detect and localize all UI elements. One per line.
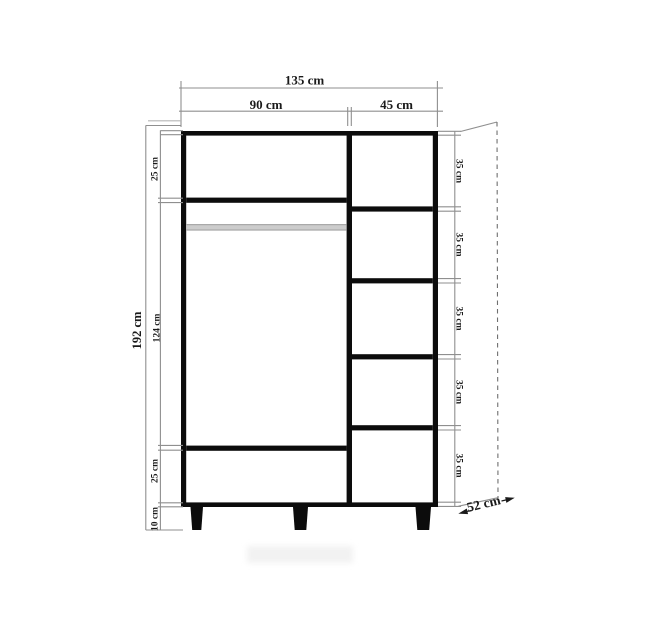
- svg-text:192 cm: 192 cm: [130, 311, 144, 349]
- svg-text:35 cm: 35 cm: [454, 306, 464, 330]
- svg-text:135 cm: 135 cm: [285, 73, 325, 88]
- svg-text:35 cm: 35 cm: [454, 453, 464, 477]
- svg-text:124 cm: 124 cm: [152, 314, 162, 343]
- svg-text:45 cm: 45 cm: [380, 97, 413, 112]
- svg-text:25 cm: 25 cm: [151, 157, 161, 181]
- svg-text:35 cm: 35 cm: [454, 232, 464, 256]
- svg-text:25 cm: 25 cm: [151, 459, 161, 483]
- svg-text:10 cm: 10 cm: [151, 507, 161, 531]
- svg-text:35 cm: 35 cm: [454, 380, 464, 404]
- svg-text:90 cm: 90 cm: [250, 97, 283, 112]
- svg-text:35 cm: 35 cm: [454, 159, 464, 183]
